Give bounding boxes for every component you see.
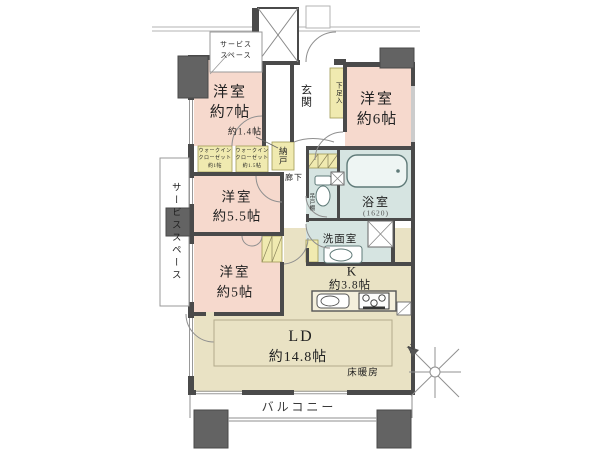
- bedroom6-area: 約6帖: [357, 113, 398, 128]
- wic-left-label-1: ウォークイン: [199, 149, 232, 154]
- kitchen-label: K: [347, 265, 357, 278]
- service-space-top-label-1: サービス: [220, 42, 252, 49]
- kitchen-area: 約3.8帖: [329, 280, 371, 292]
- service-space-left-label: サービススペース: [169, 182, 179, 282]
- wic-right-label-2: クローゼット: [236, 156, 269, 161]
- bedroom5-label: 洋室: [220, 265, 251, 279]
- bedroom55-label: 洋室: [222, 190, 253, 204]
- toilet-shelf-label: 吊戸棚: [308, 193, 314, 211]
- wic-left-area: 約1帖: [208, 164, 222, 169]
- bedroom7-label: 洋室: [213, 86, 247, 101]
- floor-heating-label: 床暖房: [347, 369, 379, 379]
- washroom-label: 洗面室: [323, 235, 358, 246]
- living-dining-label: LD: [288, 329, 313, 345]
- wic-annotation: 約1.4帖: [228, 128, 262, 137]
- entrance-label: 玄関: [300, 84, 311, 108]
- wic-left-label-2: クローゼット: [199, 156, 232, 161]
- floorplan-drawing: [0, 0, 600, 450]
- bedroom6-label: 洋室: [360, 93, 394, 108]
- service-space-top-label-2: スペース: [220, 53, 251, 60]
- living-dining-area: 約14.8帖: [269, 351, 328, 365]
- toilet-icon: [315, 176, 331, 185]
- floorplan: サービス スペース 洋室 約7帖 約1.4帖 ウォークイン クローゼット 約1帖…: [0, 0, 600, 450]
- wic-right-area: 約1.5帖: [243, 164, 262, 169]
- bathroom-size: (1620): [363, 209, 389, 217]
- balcony-label: バルコニー: [262, 401, 337, 413]
- shoe-cabinet-label: 下足入: [334, 82, 341, 105]
- storage-room-label: 納戸: [279, 147, 288, 166]
- bedroom55-area: 約5.5帖: [213, 209, 262, 223]
- bedroom5-area: 約5帖: [217, 285, 254, 299]
- elevator-shaft: [258, 8, 298, 62]
- hallway-label: 廊下: [285, 174, 303, 182]
- bathroom-label: 浴室: [362, 196, 390, 208]
- wic-right-label-1: ウォークイン: [236, 149, 269, 154]
- bedroom7-area: 約7帖: [210, 106, 251, 121]
